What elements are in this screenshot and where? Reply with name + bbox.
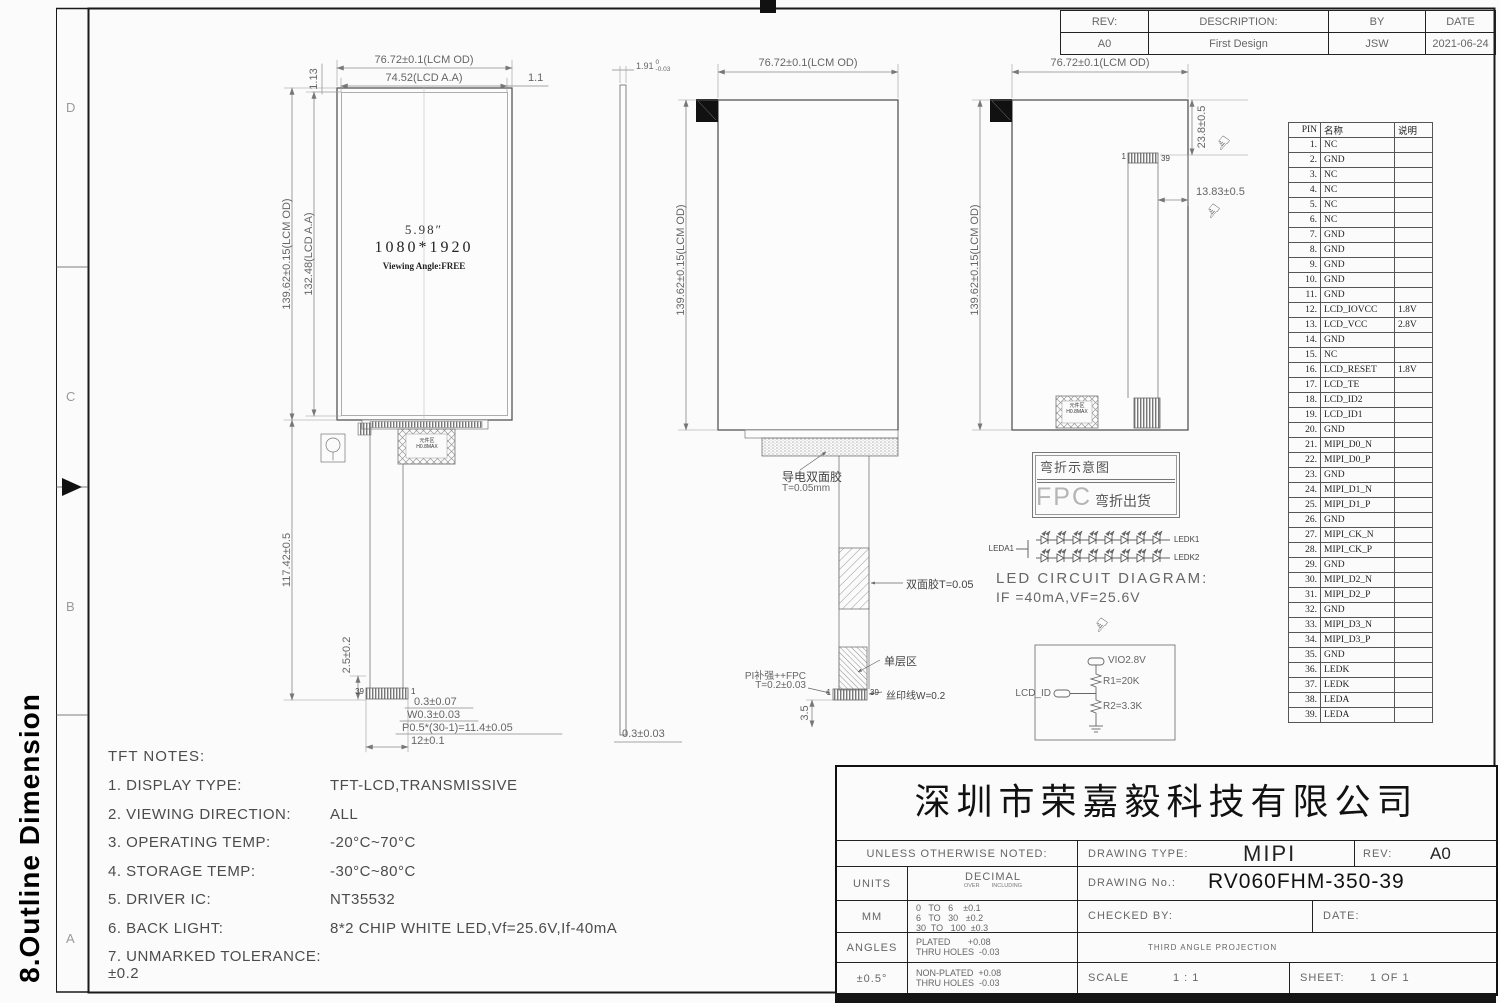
dim-aa-width: 74.52(LCD A.A) [385, 72, 462, 84]
note-label: 4. STORAGE TEMP: [108, 863, 330, 880]
table-cell: 11. [1289, 288, 1321, 303]
projection-label: THIRD ANGLE PROJECTION [1148, 943, 1277, 952]
dim-rear-height: 139.62±0.15(LCM OD) [675, 204, 687, 315]
table-cell: LCD_ID2 [1321, 393, 1395, 408]
table-cell: LCD_IOVCC [1321, 303, 1395, 318]
tolerance-row-1: 0 TO 6 ±0.1 [916, 903, 1078, 913]
table-cell: 9. [1289, 258, 1321, 273]
table-cell: 2.8V [1395, 318, 1433, 333]
table-row: 24.MIPI_D1_N [1289, 483, 1433, 498]
table-cell: 36. [1289, 663, 1321, 678]
section-title: 8.Outline Dimension [14, 693, 46, 983]
table-cell: NC [1321, 213, 1395, 228]
nonplated-line-1: NON-PLATED +0.08 [916, 968, 1078, 978]
plated-line-1: PLATED +0.08 [916, 937, 1078, 947]
note-label: 6. BACK LIGHT: [108, 920, 330, 937]
folded-pin-1: 1 [1122, 152, 1126, 161]
table-row: 37.LEDK [1289, 678, 1433, 693]
table-cell: 12. [1289, 303, 1321, 318]
table-cell: First Design [1149, 33, 1329, 55]
table-row: 21.MIPI_D0_N [1289, 438, 1433, 453]
table-row: 14.GND [1289, 333, 1433, 348]
nonplated-line-2: THRU HOLES -0.03 [916, 978, 1078, 988]
drawing-type-label: DRAWING TYPE: [1088, 848, 1188, 860]
sheet-label: SHEET: [1300, 972, 1345, 984]
fpc-fold-note-box: 弯折示意图 FPC 弯折出货 [1032, 452, 1180, 518]
table-cell [1395, 633, 1433, 648]
note-label: 3. OPERATING TEMP: [108, 834, 330, 851]
note-item: 7. UNMARKED TOLERANCE:±0.2 [108, 948, 617, 982]
tolerance-row-2: 6 TO 30 ±0.2 [916, 913, 1078, 923]
table-cell [1395, 288, 1433, 303]
table-cell [1395, 588, 1433, 603]
table-cell [1395, 483, 1433, 498]
panel-size-label: 5.98″ [405, 222, 443, 238]
note-label: 5. DRIVER IC: [108, 891, 330, 908]
table-cell [1395, 258, 1433, 273]
led-k1-label: LEDK1 [1174, 535, 1199, 544]
fold-box-title: 弯折示意图 [1040, 457, 1110, 476]
tape-label: 双面胶T=0.05 [906, 576, 974, 592]
table-cell: 22. [1289, 453, 1321, 468]
table-cell: MIPI_D0_P [1321, 453, 1395, 468]
table-row: 9.GND [1289, 258, 1433, 273]
dim-rear-width: 76.72±0.1(LCM OD) [759, 57, 858, 69]
table-cell [1395, 618, 1433, 633]
table-row: PIN名称说明 [1289, 123, 1433, 138]
table-cell [1395, 573, 1433, 588]
table-cell: 3. [1289, 168, 1321, 183]
note-item: 1. DISPLAY TYPE:TFT-LCD,TRANSMISSIVE [108, 777, 617, 794]
table-row: 39.LEDA [1289, 708, 1433, 723]
table-cell: LEDK [1321, 663, 1395, 678]
table-cell [1395, 468, 1433, 483]
table-cell: MIPI_D1_P [1321, 498, 1395, 513]
table-row: 15.NC [1289, 348, 1433, 363]
table-row: 11.GND [1289, 288, 1433, 303]
table-row: 13.LCD_VCC2.8V [1289, 318, 1433, 333]
r2-label: R2=3.3K [1103, 701, 1142, 712]
table-cell [1395, 663, 1433, 678]
table-cell: 27. [1289, 528, 1321, 543]
fold-box-subtitle: 弯折出货 [1095, 491, 1151, 511]
table-cell: GND [1321, 273, 1395, 288]
led-anode-label: LEDA1 [989, 544, 1014, 553]
zone-letter-d: D [66, 100, 75, 115]
table-cell [1395, 423, 1433, 438]
table-cell: 说明 [1395, 123, 1433, 138]
table-cell: GND [1321, 153, 1395, 168]
table-cell [1395, 648, 1433, 663]
drawing-type-value: MIPI [1243, 841, 1296, 867]
note-value: -30°C~80°C [330, 863, 416, 880]
table-row: 12.LCD_IOVCC1.8V [1289, 303, 1433, 318]
table-cell: REV: [1061, 11, 1149, 33]
table-cell [1395, 393, 1433, 408]
pin-number-39: 39 [355, 687, 364, 696]
table-cell: 37. [1289, 678, 1321, 693]
table-cell [1395, 708, 1433, 723]
notes-title: TFT NOTES: [108, 748, 617, 765]
table-row: 30.MIPI_D2_N [1289, 573, 1433, 588]
pin-table-head: PIN名称说明 [1289, 123, 1433, 138]
table-cell: GND [1321, 558, 1395, 573]
pin-table-body: 1.NC2.GND3.NC4.NC5.NC6.NC7.GND8.GND9.GND… [1289, 138, 1433, 723]
zone-letter-a: A [66, 931, 75, 946]
table-cell: MIPI_CK_N [1321, 528, 1395, 543]
table-cell [1395, 513, 1433, 528]
note-label: 1. DISPLAY TYPE: [108, 777, 330, 794]
scale-label: SCALE [1088, 972, 1129, 984]
dim-lcm-height: 139.62±0.15(LCM OD) [281, 198, 293, 309]
revision-table-body: A0First DesignJSW2021-06-24 [1061, 33, 1496, 55]
table-cell: 35. [1289, 648, 1321, 663]
table-cell: 38. [1289, 693, 1321, 708]
side-view-linework [612, 66, 682, 742]
table-cell: 33. [1289, 618, 1321, 633]
zone-letter-c: C [66, 389, 75, 404]
table-cell [1395, 153, 1433, 168]
drawing-sheet: 8.Outline Dimension D C B A A 76.72±0.1(… [0, 0, 1500, 1003]
table-cell: NC [1321, 138, 1395, 153]
dim-bottom-1: 0.3±0.07 [414, 696, 457, 708]
decimal-label: DECIMAL [908, 871, 1078, 883]
table-cell [1395, 243, 1433, 258]
dim-tail: 2.5±0.2 [341, 637, 353, 674]
table-row: 34.MIPI_D3_P [1289, 633, 1433, 648]
unless-noted-label: UNLESS OTHERWISE NOTED: [837, 841, 1077, 867]
pin-number-1: 1 [411, 687, 415, 696]
table-cell [1395, 333, 1433, 348]
table-cell: LCD_ID1 [1321, 408, 1395, 423]
table-cell: 25. [1289, 498, 1321, 513]
table-row: 29.GND [1289, 558, 1433, 573]
table-cell: 29. [1289, 558, 1321, 573]
scale-value: 1 : 1 [1173, 972, 1199, 984]
table-cell: 10. [1289, 273, 1321, 288]
table-cell: 21. [1289, 438, 1321, 453]
dim-right-gap: 1.1 [528, 72, 543, 84]
table-cell: 26. [1289, 513, 1321, 528]
table-cell: 7. [1289, 228, 1321, 243]
zone-letter-b: B [66, 599, 75, 614]
table-cell: 23. [1289, 468, 1321, 483]
table-row: 26.GND [1289, 513, 1433, 528]
single-layer-zone [839, 647, 867, 690]
table-row: 1.NC [1289, 138, 1433, 153]
pin-table: PIN名称说明 1.NC2.GND3.NC4.NC5.NC6.NC7.GND8.… [1288, 122, 1433, 723]
table-cell: GND [1321, 243, 1395, 258]
date-label: DATE: [1323, 910, 1360, 922]
panel-resolution: 1080*1920 [375, 239, 474, 257]
table-row: 23.GND [1289, 468, 1433, 483]
revision-table: REV:DESCRIPTION:BYDATE A0First DesignJSW… [1060, 10, 1496, 55]
note-item: 6. BACK LIGHT:8*2 CHIP WHITE LED,Vf=25.6… [108, 920, 617, 937]
table-cell: 18. [1289, 393, 1321, 408]
table-cell [1395, 168, 1433, 183]
table-cell: 1. [1289, 138, 1321, 153]
table-cell: 2021-06-24 [1426, 33, 1496, 55]
table-row: 20.GND [1289, 423, 1433, 438]
table-cell: MIPI_D2_N [1321, 573, 1395, 588]
table-cell: 39. [1289, 708, 1321, 723]
conductive-adhesive [762, 438, 898, 456]
dim-lcm-width: 76.72±0.1(LCM OD) [375, 54, 474, 66]
mm-label: MM [837, 901, 907, 933]
revision-table-head: REV:DESCRIPTION:BYDATE [1061, 11, 1496, 33]
table-row: 31.MIPI_D2_P [1289, 588, 1433, 603]
table-cell [1395, 528, 1433, 543]
table-row: 6.NC [1289, 213, 1433, 228]
table-cell [1395, 438, 1433, 453]
table-cell [1395, 183, 1433, 198]
over-including-label: OVER INCLUDING [908, 883, 1078, 889]
table-row: 22.MIPI_D0_P [1289, 453, 1433, 468]
dim-aa-height: 132.48(LCD A.A) [303, 212, 315, 295]
dim-bottom-4: 12±0.1 [411, 735, 445, 747]
dim-folded-width: 76.72±0.1(LCM OD) [1051, 57, 1150, 69]
table-row: 10.GND [1289, 273, 1433, 288]
table-row: 4.NC [1289, 183, 1433, 198]
dim-rear-tail: 3.5 [799, 705, 811, 720]
table-cell: NC [1321, 348, 1395, 363]
note-value: ALL [330, 806, 358, 823]
table-row: 2.GND [1289, 153, 1433, 168]
table-cell: GND [1321, 288, 1395, 303]
table-cell: 1.8V [1395, 363, 1433, 378]
table-cell: JSW [1329, 33, 1426, 55]
table-cell [1395, 693, 1433, 708]
fpc-connector [366, 688, 408, 699]
led-circuit-linework [1016, 531, 1170, 562]
table-row: 25.MIPI_D1_P [1289, 498, 1433, 513]
table-cell: 2. [1289, 153, 1321, 168]
table-cell: LEDK [1321, 678, 1395, 693]
table-cell: 8. [1289, 243, 1321, 258]
table-cell: NC [1321, 168, 1395, 183]
table-cell: 34. [1289, 633, 1321, 648]
r1-label: R1=20K [1103, 676, 1139, 687]
table-row: 5.NC [1289, 198, 1433, 213]
table-row: 35.GND [1289, 648, 1433, 663]
vio-label: VIO2.8V [1108, 655, 1146, 666]
table-cell [1395, 498, 1433, 513]
table-cell: GND [1321, 513, 1395, 528]
table-row: 28.MIPI_CK_P [1289, 543, 1433, 558]
table-cell [1395, 603, 1433, 618]
table-cell: GND [1321, 648, 1395, 663]
led-k2-label: LEDK2 [1174, 553, 1199, 562]
table-cell: 28. [1289, 543, 1321, 558]
table-cell: 16. [1289, 363, 1321, 378]
component-area-text: 元件区H0.8MAX [412, 439, 442, 450]
table-cell [1395, 453, 1433, 468]
note-value: -20°C~70°C [330, 834, 416, 851]
table-row: 16.LCD_RESET1.8V [1289, 363, 1433, 378]
table-cell: 24. [1289, 483, 1321, 498]
note-value: NT35532 [330, 891, 395, 908]
table-cell: 32. [1289, 603, 1321, 618]
silkscreen-label: 丝印线W=0.2 [886, 687, 945, 702]
sheet-value: 1 OF 1 [1370, 972, 1410, 984]
table-cell: 5. [1289, 198, 1321, 213]
table-row: 32.GND [1289, 603, 1433, 618]
table-cell: 1.8V [1395, 303, 1433, 318]
fold-mark-top [760, 0, 776, 13]
rev-label: REV: [1363, 848, 1392, 860]
table-row: REV:DESCRIPTION:BYDATE [1061, 11, 1496, 33]
table-row: 18.LCD_ID2 [1289, 393, 1433, 408]
table-cell: DESCRIPTION: [1149, 11, 1329, 33]
tft-notes: TFT NOTES: 1. DISPLAY TYPE:TFT-LCD,TRANS… [108, 748, 617, 994]
table-cell [1395, 138, 1433, 153]
table-cell: GND [1321, 228, 1395, 243]
note-item: 4. STORAGE TEMP:-30°C~80°C [108, 863, 617, 880]
table-cell: GND [1321, 423, 1395, 438]
table-cell: 13. [1289, 318, 1321, 333]
dim-fold-vertical: 23.8±0.5 [1196, 106, 1208, 149]
table-cell [1395, 273, 1433, 288]
id-circuit-linework [1035, 645, 1175, 740]
table-cell: LCD_VCC [1321, 318, 1395, 333]
table-cell [1395, 678, 1433, 693]
angle-tolerance: ±0.5° [837, 963, 907, 995]
table-cell: NC [1321, 198, 1395, 213]
table-cell: LEDA [1321, 693, 1395, 708]
rear-view-linework [678, 64, 903, 727]
note-label: 2. VIEWING DIRECTION: [108, 806, 330, 823]
table-cell [1395, 228, 1433, 243]
company-name: 深圳市荣嘉毅科技有限公司 [837, 767, 1496, 840]
table-row: 8.GND [1289, 243, 1433, 258]
table-cell: 19. [1289, 408, 1321, 423]
table-cell [1395, 348, 1433, 363]
table-cell: LCD_TE [1321, 378, 1395, 393]
dim-side-bottom: 0.3±0.03 [622, 728, 665, 740]
double-sided-tape [839, 548, 869, 609]
dim-fold-horizontal: 13.83±0.5 [1196, 186, 1245, 198]
folded-component-area-text: 元件区H0.8MAX [1063, 404, 1091, 415]
checked-by-label: CHECKED BY: [1088, 910, 1173, 922]
table-cell: MIPI_D3_N [1321, 618, 1395, 633]
note-value: TFT-LCD,TRANSMISSIVE [330, 777, 518, 794]
table-cell: GND [1321, 333, 1395, 348]
rear-pin-39: 39 [870, 688, 879, 697]
title-block: 深圳市荣嘉毅科技有限公司 UNLESS OTHERWISE NOTED: DRA… [835, 765, 1498, 996]
notes-list: 1. DISPLAY TYPE:TFT-LCD,TRANSMISSIVE2. V… [108, 777, 617, 982]
table-cell [1395, 558, 1433, 573]
front-view-linework [284, 60, 562, 752]
conductive-adhesive-thickness: T=0.05mm [782, 483, 830, 494]
rev-value: A0 [1430, 844, 1451, 864]
angles-label: ANGLES [837, 933, 907, 963]
table-row: 17.LCD_TE [1289, 378, 1433, 393]
table-cell: MIPI_D1_N [1321, 483, 1395, 498]
dim-bottom-2: W0.3±0.03 [407, 709, 460, 721]
dim-fpc-length: 117.42±0.5 [281, 533, 293, 587]
note-item: 3. OPERATING TEMP:-20°C~70°C [108, 834, 617, 851]
table-cell: MIPI_CK_P [1321, 543, 1395, 558]
fold-mark-arrow [62, 478, 82, 496]
single-layer-label: 单层区 [884, 653, 917, 669]
table-cell: LCD_RESET [1321, 363, 1395, 378]
note-item: 5. DRIVER IC:NT35532 [108, 891, 617, 908]
table-cell: 15. [1289, 348, 1321, 363]
rear-pin-1: 1 [827, 688, 831, 697]
table-cell: 17. [1289, 378, 1321, 393]
table-cell [1395, 378, 1433, 393]
table-row: A0First DesignJSW2021-06-24 [1061, 33, 1496, 55]
table-cell: 名称 [1321, 123, 1395, 138]
table-row: 36.LEDK [1289, 663, 1433, 678]
lcd-id-label: LCD_ID [1015, 688, 1051, 699]
table-cell: 31. [1289, 588, 1321, 603]
table-cell: 20. [1289, 423, 1321, 438]
dim-thickness: 1.910-0.03 [636, 60, 670, 73]
table-cell: GND [1321, 603, 1395, 618]
table-cell: 4. [1289, 183, 1321, 198]
table-cell: GND [1321, 468, 1395, 483]
table-cell: NC [1321, 183, 1395, 198]
led-circuit-title: LED CIRCUIT DIAGRAM: [996, 570, 1208, 587]
sheet-edge-bar [835, 993, 1496, 1003]
drawing-no-label: DRAWING No.: [1088, 877, 1176, 889]
table-row: 7.GND [1289, 228, 1433, 243]
led-circuit-spec: IF =40mA,VF=25.6V [996, 589, 1141, 605]
table-cell: MIPI_D3_P [1321, 633, 1395, 648]
table-cell: A0 [1061, 33, 1149, 55]
table-cell: PIN [1289, 123, 1321, 138]
table-cell: BY [1329, 11, 1426, 33]
table-cell: MIPI_D2_P [1321, 588, 1395, 603]
table-row: 3.NC [1289, 168, 1433, 183]
table-cell [1395, 198, 1433, 213]
table-cell: 6. [1289, 213, 1321, 228]
table-cell: DATE [1426, 11, 1496, 33]
table-row: 27.MIPI_CK_N [1289, 528, 1433, 543]
table-cell: 30. [1289, 573, 1321, 588]
table-row: 19.LCD_ID1 [1289, 408, 1433, 423]
units-label: UNITS [837, 867, 907, 901]
table-cell: 14. [1289, 333, 1321, 348]
dim-left-gap: 1.13 [308, 68, 320, 89]
folded-pin-39: 39 [1161, 154, 1170, 163]
table-row: 33.MIPI_D3_N [1289, 618, 1433, 633]
table-cell: GND [1321, 258, 1395, 273]
note-label: 7. UNMARKED TOLERANCE:±0.2 [108, 948, 330, 982]
pi-stiffener-thickness: T=0.2±0.03 [755, 680, 806, 691]
table-cell: LEDA [1321, 708, 1395, 723]
dim-bottom-3: P0.5*(30-1)=11.4±0.05 [402, 722, 513, 734]
note-item: 2. VIEWING DIRECTION:ALL [108, 806, 617, 823]
dim-folded-height: 139.62±0.15(LCM OD) [969, 204, 981, 315]
drawing-no-value: RV060FHM-350-39 [1208, 870, 1405, 894]
table-cell [1395, 408, 1433, 423]
note-value: 8*2 CHIP WHITE LED,Vf=25.6V,If-40mA [330, 920, 617, 937]
table-row: 38.LEDA [1289, 693, 1433, 708]
table-cell: MIPI_D0_N [1321, 438, 1395, 453]
table-cell [1395, 543, 1433, 558]
viewing-angle-label: Viewing Angle:FREE [383, 261, 465, 271]
fold-box-fpc: FPC [1036, 483, 1092, 512]
table-cell [1395, 213, 1433, 228]
plated-line-2: THRU HOLES -0.03 [916, 947, 1078, 957]
